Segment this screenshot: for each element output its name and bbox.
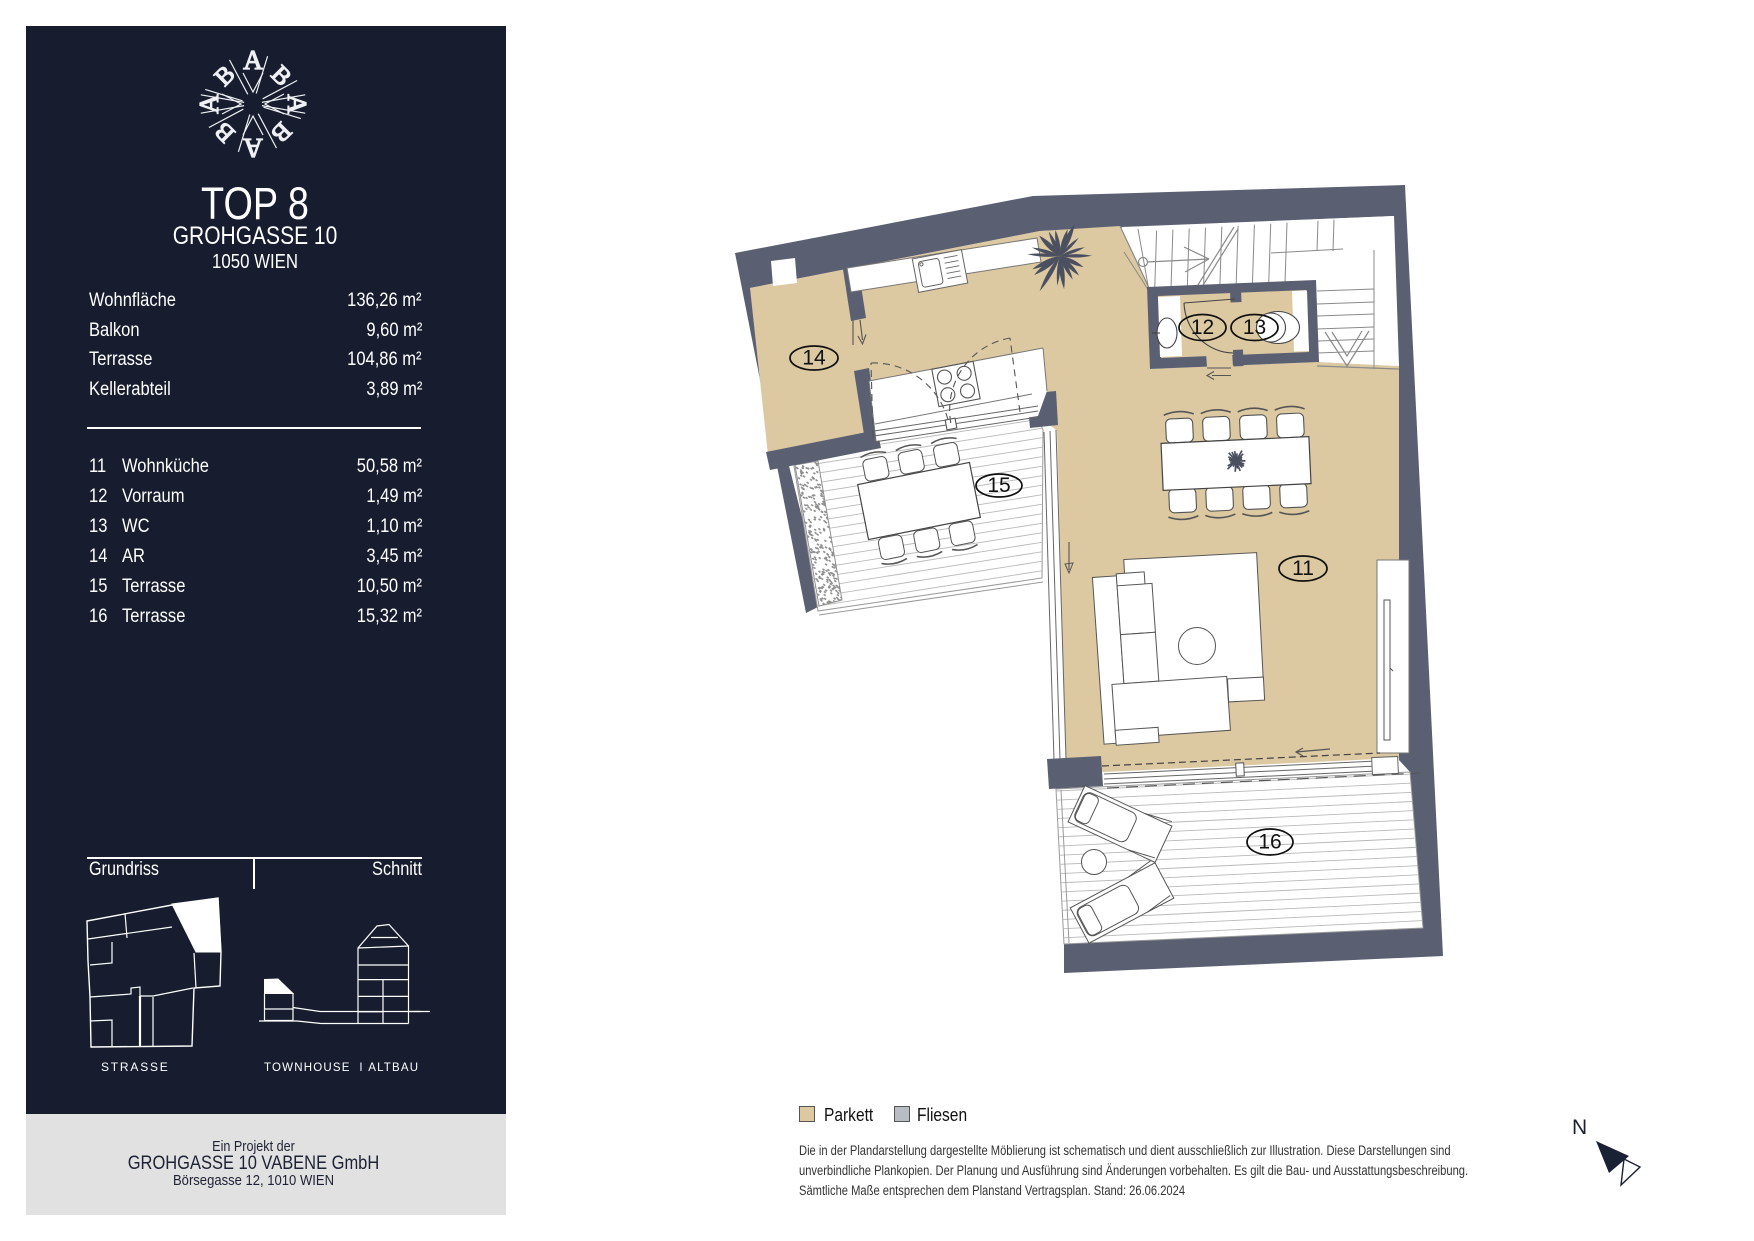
svg-text:B: B bbox=[265, 61, 296, 92]
svg-text:11: 11 bbox=[1292, 557, 1314, 580]
svg-text:B: B bbox=[210, 116, 241, 147]
svg-text:B: B bbox=[210, 61, 241, 92]
svg-text:A: A bbox=[194, 94, 224, 114]
svg-text:A: A bbox=[282, 94, 312, 114]
svg-text:A: A bbox=[243, 45, 263, 75]
svg-text:N: N bbox=[1572, 1116, 1587, 1139]
svg-text:B: B bbox=[265, 116, 296, 147]
svg-text:12: 12 bbox=[1191, 316, 1214, 339]
svg-text:15: 15 bbox=[987, 474, 1010, 497]
svg-text:16: 16 bbox=[1258, 831, 1281, 854]
svg-text:13: 13 bbox=[1243, 316, 1266, 339]
svg-text:14: 14 bbox=[802, 347, 826, 370]
svg-text:A: A bbox=[243, 133, 263, 163]
